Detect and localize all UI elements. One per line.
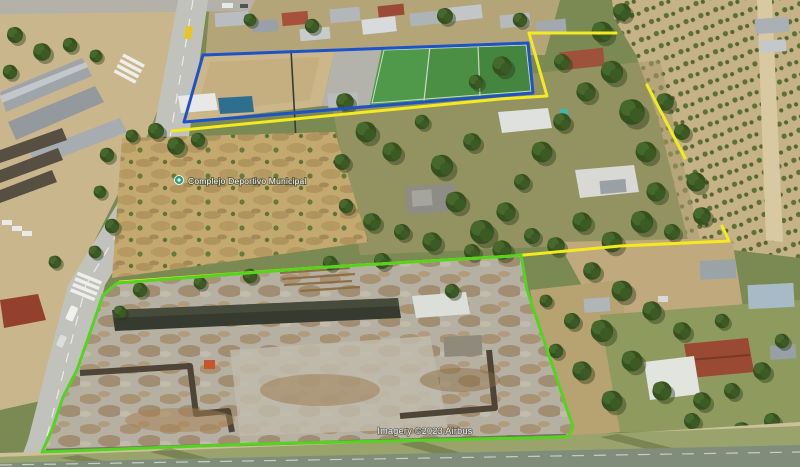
place-marker-dot: [177, 178, 180, 181]
aerial-scene: Complejo Deportivo Municipal Imagery ©20…: [0, 0, 800, 467]
vehicle: [222, 3, 233, 8]
place-label[interactable]: Complejo Deportivo Municipal: [175, 176, 307, 187]
imagery-attribution: Imagery ©2023 Airbus: [377, 426, 472, 436]
clubhouse-white: [178, 93, 218, 113]
shed: [600, 179, 627, 194]
aerial-map-view[interactable]: Complejo Deportivo Municipal Imagery ©20…: [0, 0, 800, 467]
excavator: [204, 360, 215, 369]
demolition-site: [42, 255, 573, 452]
gray-shed: [444, 335, 483, 357]
vehicle: [240, 4, 248, 8]
blue-metal-roof: [747, 283, 794, 309]
car: [658, 296, 668, 302]
place-label-text[interactable]: Complejo Deportivo Municipal: [188, 176, 307, 186]
clubhouse-blue: [218, 96, 254, 114]
